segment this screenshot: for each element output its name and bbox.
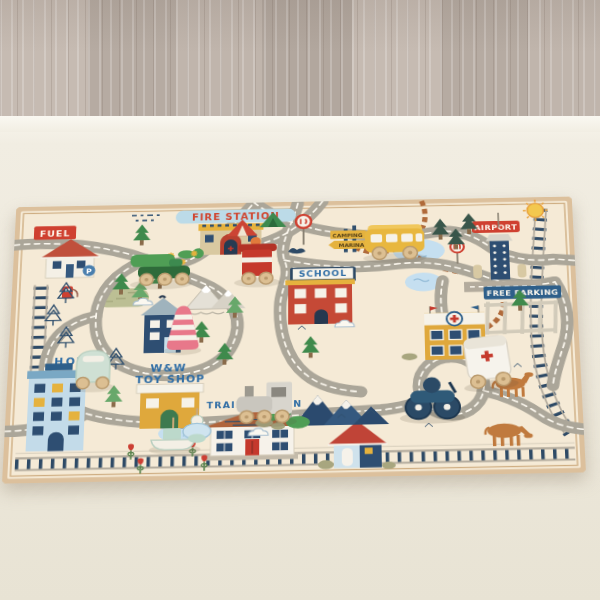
airport-sign: AIRPORT xyxy=(472,221,520,234)
p-sign-label: P xyxy=(86,267,92,275)
product-photo-scene: FUEL P FIRE STATION xyxy=(0,0,600,600)
toy-yellow-school-bus xyxy=(363,224,427,264)
wood-floor xyxy=(0,0,600,116)
camping-label: CAMPING xyxy=(333,232,364,238)
carpet-edge xyxy=(0,116,600,132)
fuel-sign: FUEL xyxy=(34,226,77,240)
marina-label: MARINA xyxy=(339,242,366,248)
toyshop-label-1: W&W xyxy=(150,362,186,374)
airport-label: AIRPORT xyxy=(474,223,518,232)
play-rug: FUEL P FIRE STATION xyxy=(2,197,586,484)
fuel-label: FUEL xyxy=(39,228,70,238)
school-label: SCHOOL xyxy=(299,269,347,279)
school-building xyxy=(285,279,355,325)
